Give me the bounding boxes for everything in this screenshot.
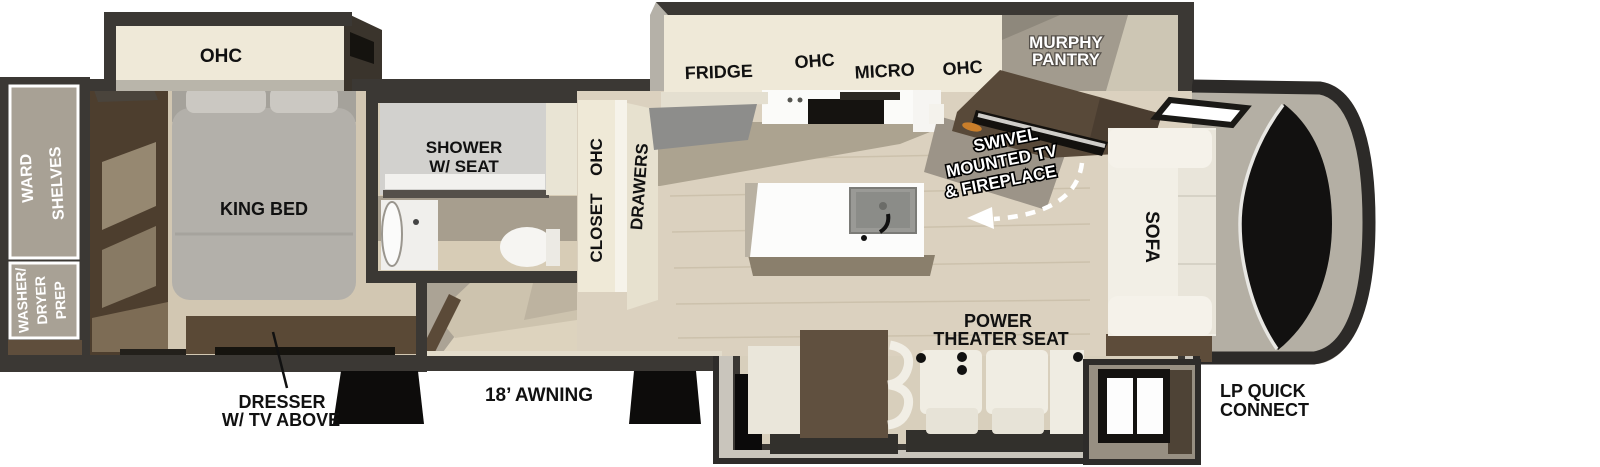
svg-text:OHC: OHC — [942, 57, 983, 80]
svg-text:POWER: POWER — [964, 311, 1032, 331]
svg-text:MICRO: MICRO — [854, 59, 915, 82]
svg-text:OHC: OHC — [587, 138, 606, 176]
svg-text:CLOSET: CLOSET — [587, 193, 606, 263]
svg-text:PREP: PREP — [51, 281, 69, 320]
svg-text:OHC: OHC — [794, 50, 835, 73]
svg-text:WARD: WARD — [18, 153, 38, 203]
svg-text:WASHER/: WASHER/ — [12, 267, 31, 333]
svg-text:THEATER SEAT: THEATER SEAT — [933, 329, 1068, 349]
svg-text:SHOWER: SHOWER — [426, 138, 503, 157]
svg-text:18’ AWNING: 18’ AWNING — [485, 385, 593, 406]
svg-text:LP QUICK: LP QUICK — [1220, 381, 1306, 401]
svg-text:DRYER: DRYER — [32, 276, 51, 325]
svg-text:OHC: OHC — [200, 46, 243, 67]
svg-text:FRIDGE: FRIDGE — [684, 61, 753, 83]
svg-text:W/ TV ABOVE: W/ TV ABOVE — [222, 410, 340, 430]
svg-text:KING BED: KING BED — [220, 199, 308, 219]
svg-text:W/ SEAT: W/ SEAT — [429, 157, 499, 176]
svg-text:DRESSER: DRESSER — [238, 392, 325, 412]
svg-text:SOFA: SOFA — [1141, 211, 1162, 263]
svg-text:PANTRY: PANTRY — [1032, 50, 1101, 69]
svg-text:CONNECT: CONNECT — [1220, 400, 1309, 420]
